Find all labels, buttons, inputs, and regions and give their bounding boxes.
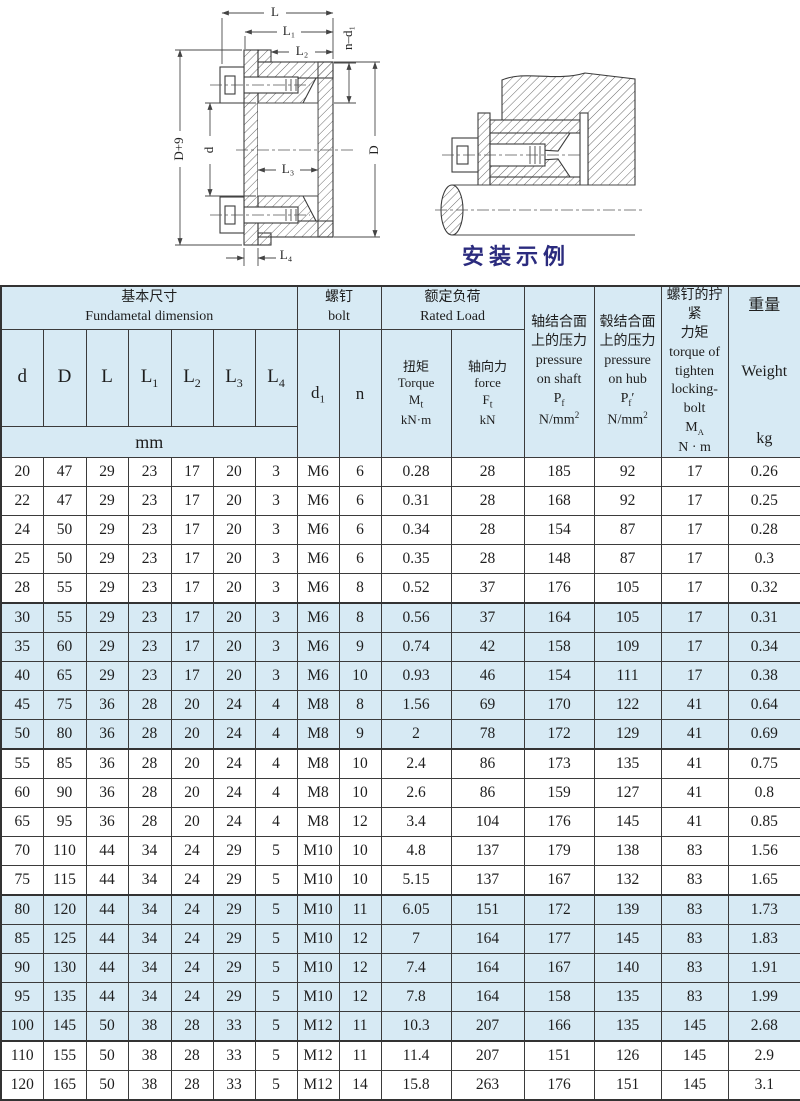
- table-cell: 167: [524, 866, 594, 896]
- table-cell: 12: [339, 983, 381, 1012]
- table-cell: 23: [128, 603, 171, 633]
- table-cell: 20: [171, 720, 213, 750]
- table-cell: 92: [594, 458, 661, 487]
- table-cell: M10: [297, 866, 339, 896]
- table-cell: 20: [171, 691, 213, 720]
- table-cell: 0.38: [728, 662, 800, 691]
- table-cell: 11.4: [381, 1041, 451, 1071]
- table-cell: 20: [171, 808, 213, 837]
- table-cell: 109: [594, 633, 661, 662]
- table-cell: 0.31: [728, 603, 800, 633]
- table-row: 85125443424295M10127164177145831.83: [1, 925, 800, 954]
- table-cell: 50: [43, 545, 86, 574]
- table-cell: 29: [213, 925, 255, 954]
- table-row: 80120443424295M10116.05151172139831.73: [1, 895, 800, 925]
- table-cell: 1.83: [728, 925, 800, 954]
- table-cell: 69: [451, 691, 524, 720]
- table-cell: 7.8: [381, 983, 451, 1012]
- table-cell: 20: [213, 516, 255, 545]
- table-cell: 17: [661, 662, 728, 691]
- table-cell: 45: [1, 691, 43, 720]
- table-cell: 1.65: [728, 866, 800, 896]
- table-row: 5585362820244M8102.486173135410.75: [1, 749, 800, 779]
- table-cell: 151: [451, 895, 524, 925]
- col-L: L: [86, 330, 128, 427]
- table-cell: 20: [213, 603, 255, 633]
- table-cell: 10: [339, 866, 381, 896]
- table-cell: M8: [297, 720, 339, 750]
- table-cell: 11: [339, 1041, 381, 1071]
- table-body: 2047292317203M660.282818592170.262247292…: [1, 458, 800, 1101]
- table-cell: 83: [661, 895, 728, 925]
- table-cell: 44: [86, 925, 128, 954]
- table-cell: 8: [339, 603, 381, 633]
- table-cell: 9: [339, 720, 381, 750]
- table-cell: 135: [594, 1012, 661, 1042]
- table-cell: 167: [524, 954, 594, 983]
- table-cell: 3.4: [381, 808, 451, 837]
- table-cell: 129: [594, 720, 661, 750]
- table-cell: 4: [255, 749, 297, 779]
- table-row: 2450292317203M660.342815487170.28: [1, 516, 800, 545]
- table-cell: 8: [339, 691, 381, 720]
- table-cell: 65: [43, 662, 86, 691]
- table-row: 2247292317203M660.312816892170.25: [1, 487, 800, 516]
- table-cell: 10: [339, 837, 381, 866]
- table-cell: 185: [524, 458, 594, 487]
- table-cell: 8: [339, 574, 381, 604]
- table-cell: 6: [339, 516, 381, 545]
- table-row: 6090362820244M8102.686159127410.8: [1, 779, 800, 808]
- table-cell: 5: [255, 954, 297, 983]
- table-cell: 130: [43, 954, 86, 983]
- table-cell: M12: [297, 1012, 339, 1042]
- table-cell: 36: [86, 779, 128, 808]
- table-cell: 0.75: [728, 749, 800, 779]
- table-cell: 29: [213, 837, 255, 866]
- table-cell: 164: [451, 983, 524, 1012]
- table-cell: 17: [661, 487, 728, 516]
- table-cell: 177: [524, 925, 594, 954]
- table-cell: 5: [255, 1041, 297, 1071]
- table-cell: 65: [1, 808, 43, 837]
- table-cell: M6: [297, 662, 339, 691]
- table-cell: 10: [339, 662, 381, 691]
- table-cell: 105: [594, 574, 661, 604]
- col-axial-force: 轴向力 force Ft kN: [451, 330, 524, 458]
- table-cell: 95: [43, 808, 86, 837]
- table-cell: 33: [213, 1012, 255, 1042]
- table-cell: 2.4: [381, 749, 451, 779]
- table-cell: 4.8: [381, 837, 451, 866]
- table-cell: 24: [171, 866, 213, 896]
- header-basic-en: Fundametal dimension: [2, 308, 297, 327]
- table-cell: 37: [451, 603, 524, 633]
- table-cell: 155: [43, 1041, 86, 1071]
- table-cell: 17: [661, 458, 728, 487]
- table-cell: 17: [171, 458, 213, 487]
- table-cell: M10: [297, 954, 339, 983]
- table-cell: 17: [171, 487, 213, 516]
- table-cell: 20: [213, 633, 255, 662]
- table-row: 2550292317203M660.352814887170.3: [1, 545, 800, 574]
- table-cell: 207: [451, 1041, 524, 1071]
- col-L4: L4: [255, 330, 297, 427]
- table-cell: 104: [451, 808, 524, 837]
- table-cell: 145: [594, 808, 661, 837]
- table-cell: 50: [1, 720, 43, 750]
- table-cell: 0.56: [381, 603, 451, 633]
- table-cell: 3: [255, 458, 297, 487]
- table-cell: 158: [524, 633, 594, 662]
- table-cell: M12: [297, 1041, 339, 1071]
- table-cell: 145: [661, 1071, 728, 1101]
- table-cell: 75: [1, 866, 43, 896]
- table-cell: 263: [451, 1071, 524, 1101]
- table-cell: 44: [86, 954, 128, 983]
- header-bolt-zh: 螺钉: [298, 289, 381, 308]
- table-row: 4065292317203M6100.9346154111170.38: [1, 662, 800, 691]
- table-cell: 5.15: [381, 866, 451, 896]
- table-cell: 28: [128, 779, 171, 808]
- table-row: 6595362820244M8123.4104176145410.85: [1, 808, 800, 837]
- table-cell: 29: [86, 516, 128, 545]
- table-cell: 3.1: [728, 1071, 800, 1101]
- table-cell: 105: [594, 603, 661, 633]
- table-cell: 60: [1, 779, 43, 808]
- table-row: 95135443424295M10127.8164158135831.99: [1, 983, 800, 1012]
- table-cell: 38: [128, 1012, 171, 1042]
- table-cell: 30: [1, 603, 43, 633]
- table-cell: 70: [1, 837, 43, 866]
- table-cell: 23: [128, 633, 171, 662]
- table-cell: 17: [661, 545, 728, 574]
- table-cell: 6: [339, 458, 381, 487]
- table-cell: 139: [594, 895, 661, 925]
- table-cell: 85: [1, 925, 43, 954]
- table-cell: 0.28: [381, 458, 451, 487]
- table-cell: 145: [661, 1012, 728, 1042]
- installation-example-caption: 安装示例: [462, 239, 622, 271]
- table-cell: 17: [171, 516, 213, 545]
- table-cell: 41: [661, 749, 728, 779]
- table-cell: 5: [255, 837, 297, 866]
- table-cell: M10: [297, 837, 339, 866]
- table-cell: 172: [524, 720, 594, 750]
- table-cell: 110: [1, 1041, 43, 1071]
- table-cell: 207: [451, 1012, 524, 1042]
- table-cell: 12: [339, 808, 381, 837]
- table-cell: 0.31: [381, 487, 451, 516]
- table-cell: 20: [213, 662, 255, 691]
- table-cell: 1.91: [728, 954, 800, 983]
- col-d1: d1: [297, 330, 339, 458]
- table-cell: 44: [86, 866, 128, 896]
- table-cell: 140: [594, 954, 661, 983]
- table-cell: 0.85: [728, 808, 800, 837]
- table-cell: 3: [255, 603, 297, 633]
- table-cell: 125: [43, 925, 86, 954]
- table-cell: 17: [171, 545, 213, 574]
- table-cell: 22: [1, 487, 43, 516]
- table-cell: 87: [594, 516, 661, 545]
- table-cell: 164: [524, 603, 594, 633]
- table-cell: 20: [213, 487, 255, 516]
- table-cell: 29: [86, 487, 128, 516]
- table-cell: 34: [128, 983, 171, 1012]
- table-cell: 120: [43, 895, 86, 925]
- table-row: 3560292317203M690.7442158109170.34: [1, 633, 800, 662]
- table-cell: 38: [128, 1041, 171, 1071]
- table-cell: 36: [86, 720, 128, 750]
- table-cell: 28: [171, 1012, 213, 1042]
- table-cell: 83: [661, 866, 728, 896]
- table-cell: 4: [255, 720, 297, 750]
- table-cell: 23: [128, 662, 171, 691]
- table-cell: 5: [255, 866, 297, 896]
- table-cell: 2.68: [728, 1012, 800, 1042]
- col-torque: 扭矩 Torque Mt kN·m: [381, 330, 451, 458]
- table-cell: 172: [524, 895, 594, 925]
- table-cell: 35: [1, 633, 43, 662]
- table-cell: 176: [524, 574, 594, 604]
- table-cell: 28: [171, 1041, 213, 1071]
- table-cell: 17: [661, 574, 728, 604]
- col-L2: L2: [171, 330, 213, 427]
- table-cell: 23: [128, 458, 171, 487]
- table-cell: 24: [1, 516, 43, 545]
- table-cell: 47: [43, 458, 86, 487]
- table-cell: 122: [594, 691, 661, 720]
- table-cell: 29: [213, 954, 255, 983]
- table-cell: 14: [339, 1071, 381, 1101]
- table-cell: 0.32: [728, 574, 800, 604]
- table-cell: 3: [255, 574, 297, 604]
- table-cell: 41: [661, 720, 728, 750]
- table-cell: 46: [451, 662, 524, 691]
- table-cell: 5: [255, 1071, 297, 1101]
- table-cell: 5: [255, 983, 297, 1012]
- table-cell: 159: [524, 779, 594, 808]
- unit-mm: mm: [1, 427, 297, 458]
- table-cell: 135: [43, 983, 86, 1012]
- table-cell: 24: [213, 779, 255, 808]
- dim-label-D-plus-9: D+9: [171, 137, 186, 160]
- table-row: 100145503828335M121110.32071661351452.68: [1, 1012, 800, 1042]
- table-cell: 6: [339, 545, 381, 574]
- col-D: D: [43, 330, 86, 427]
- table-cell: 127: [594, 779, 661, 808]
- table-cell: 15.8: [381, 1071, 451, 1101]
- table-cell: 36: [86, 691, 128, 720]
- table-cell: 0.35: [381, 545, 451, 574]
- table-cell: 173: [524, 749, 594, 779]
- table-cell: M10: [297, 895, 339, 925]
- table-cell: 44: [86, 837, 128, 866]
- table-cell: 3: [255, 487, 297, 516]
- table-cell: 9: [339, 633, 381, 662]
- table-cell: 0.74: [381, 633, 451, 662]
- table-cell: 12: [339, 925, 381, 954]
- table-cell: 11: [339, 1012, 381, 1042]
- table-cell: 0.8: [728, 779, 800, 808]
- table-cell: 33: [213, 1071, 255, 1101]
- table-cell: 55: [1, 749, 43, 779]
- table-cell: 24: [171, 983, 213, 1012]
- table-cell: 29: [86, 458, 128, 487]
- table-row: 120165503828335M121415.82631761511453.1: [1, 1071, 800, 1101]
- table-cell: 83: [661, 837, 728, 866]
- table-cell: 5: [255, 895, 297, 925]
- table-cell: 2.9: [728, 1041, 800, 1071]
- table-cell: 0.3: [728, 545, 800, 574]
- table-cell: 24: [171, 925, 213, 954]
- table-cell: M6: [297, 458, 339, 487]
- table-cell: 41: [661, 808, 728, 837]
- table-cell: 55: [43, 603, 86, 633]
- dim-label-D: D: [366, 145, 381, 154]
- table-cell: 12: [339, 954, 381, 983]
- table-cell: 80: [43, 720, 86, 750]
- table-cell: 17: [171, 662, 213, 691]
- table-cell: 1.73: [728, 895, 800, 925]
- table-cell: 1.99: [728, 983, 800, 1012]
- table-cell: 41: [661, 691, 728, 720]
- table-cell: 170: [524, 691, 594, 720]
- table-cell: 23: [128, 545, 171, 574]
- table-cell: 11: [339, 895, 381, 925]
- table-row: 75115443424295M10105.15137167132831.65: [1, 866, 800, 896]
- table-cell: 29: [86, 545, 128, 574]
- table-cell: M8: [297, 691, 339, 720]
- table-row: 110155503828335M121111.42071511261452.9: [1, 1041, 800, 1071]
- table-cell: 28: [451, 458, 524, 487]
- table-cell: 17: [171, 603, 213, 633]
- table-cell: 5: [255, 925, 297, 954]
- table-cell: 80: [1, 895, 43, 925]
- table-cell: 36: [86, 808, 128, 837]
- table-row: 3055292317203M680.5637164105170.31: [1, 603, 800, 633]
- header-weight: 重量 Weight kg: [728, 286, 800, 458]
- table-cell: 55: [43, 574, 86, 604]
- table-cell: 23: [128, 574, 171, 604]
- dimension-spec-table: 基本尺寸 Fundametal dimension 螺钉 bolt 额定负荷 R…: [0, 285, 800, 1101]
- table-cell: 110: [43, 837, 86, 866]
- table-cell: 29: [86, 603, 128, 633]
- table-cell: 85: [43, 749, 86, 779]
- table-cell: 20: [213, 458, 255, 487]
- table-cell: 151: [524, 1041, 594, 1071]
- header-basic-dimension: 基本尺寸 Fundametal dimension: [1, 286, 297, 330]
- table-cell: 75: [43, 691, 86, 720]
- table-cell: 158: [524, 983, 594, 1012]
- dim-label-L3: L₃: [282, 161, 294, 176]
- table-cell: 3: [255, 545, 297, 574]
- header-basic-zh: 基本尺寸: [2, 289, 297, 308]
- table-cell: 86: [451, 749, 524, 779]
- table-cell: 34: [128, 837, 171, 866]
- table-cell: 0.28: [728, 516, 800, 545]
- locking-assembly-section-drawing: L L₁ L₂ n–d₁ D+9 d D L: [148, 0, 398, 285]
- table-cell: 44: [86, 983, 128, 1012]
- table-cell: 25: [1, 545, 43, 574]
- table-cell: 10: [339, 749, 381, 779]
- table-cell: M6: [297, 516, 339, 545]
- table-cell: 24: [213, 720, 255, 750]
- table-cell: 86: [451, 779, 524, 808]
- table-cell: 166: [524, 1012, 594, 1042]
- table-cell: 28: [171, 1071, 213, 1101]
- table-cell: 111: [594, 662, 661, 691]
- table-cell: 20: [1, 458, 43, 487]
- table-cell: 50: [43, 516, 86, 545]
- table-row: 90130443424295M10127.4164167140831.91: [1, 954, 800, 983]
- table-cell: 151: [594, 1071, 661, 1101]
- table-cell: 145: [43, 1012, 86, 1042]
- table-cell: 29: [213, 983, 255, 1012]
- table-cell: 95: [1, 983, 43, 1012]
- table-cell: 120: [1, 1071, 43, 1101]
- table-cell: 28: [128, 720, 171, 750]
- table-cell: 0.64: [728, 691, 800, 720]
- table-cell: 60: [43, 633, 86, 662]
- header-bolt: 螺钉 bolt: [297, 286, 381, 330]
- table-cell: 126: [594, 1041, 661, 1071]
- table-cell: 0.34: [728, 633, 800, 662]
- table-cell: 132: [594, 866, 661, 896]
- table-cell: 41: [661, 779, 728, 808]
- table-cell: 145: [661, 1041, 728, 1071]
- header-pressure-on-hub: 毂结合面 上的压力 pressure on hub Pf′ N/mm2: [594, 286, 661, 458]
- table-cell: 20: [213, 545, 255, 574]
- table-cell: M6: [297, 487, 339, 516]
- table-cell: 20: [171, 779, 213, 808]
- header-bolt-en: bolt: [298, 308, 381, 327]
- table-cell: 34: [128, 895, 171, 925]
- table-cell: 90: [43, 779, 86, 808]
- table-cell: M12: [297, 1071, 339, 1101]
- table-cell: 40: [1, 662, 43, 691]
- table-cell: 24: [213, 691, 255, 720]
- table-cell: 28: [128, 808, 171, 837]
- table-cell: M10: [297, 925, 339, 954]
- table-cell: 3: [255, 662, 297, 691]
- table-cell: 17: [661, 516, 728, 545]
- table-cell: 29: [213, 866, 255, 896]
- table-cell: 24: [171, 954, 213, 983]
- col-L1: L1: [128, 330, 171, 427]
- table-cell: 0.26: [728, 458, 800, 487]
- table-cell: 0.69: [728, 720, 800, 750]
- table-cell: 83: [661, 954, 728, 983]
- table-cell: 10: [339, 779, 381, 808]
- table-cell: 176: [524, 808, 594, 837]
- table-cell: 83: [661, 925, 728, 954]
- dim-label-n-d1: n–d₁: [340, 26, 355, 50]
- table-cell: 4: [255, 808, 297, 837]
- table-cell: 83: [661, 983, 728, 1012]
- table-row: 4575362820244M881.5669170122410.64: [1, 691, 800, 720]
- table-cell: 138: [594, 837, 661, 866]
- table-cell: 29: [213, 895, 255, 925]
- table-cell: 148: [524, 545, 594, 574]
- col-d: d: [1, 330, 43, 427]
- table-cell: M8: [297, 779, 339, 808]
- table-cell: 28: [451, 545, 524, 574]
- header-rated-zh: 额定负荷: [382, 289, 524, 308]
- col-L3: L3: [213, 330, 255, 427]
- table-row: 2047292317203M660.282818592170.26: [1, 458, 800, 487]
